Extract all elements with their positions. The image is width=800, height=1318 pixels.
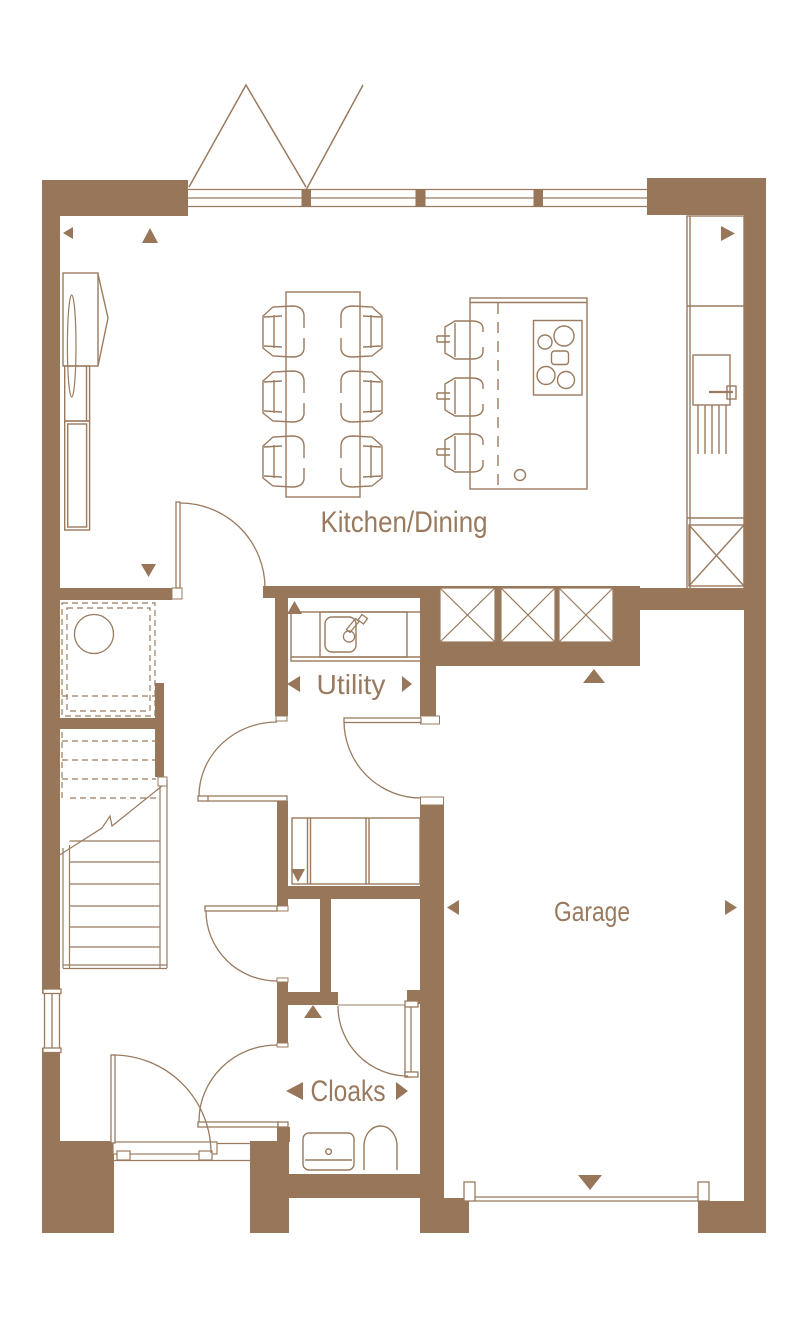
svg-text:Kitchen/Dining: Kitchen/Dining xyxy=(321,506,488,539)
svg-text:Utility: Utility xyxy=(317,669,386,700)
svg-text:Garage: Garage xyxy=(554,896,630,927)
svg-text:Cloaks: Cloaks xyxy=(311,1075,386,1108)
